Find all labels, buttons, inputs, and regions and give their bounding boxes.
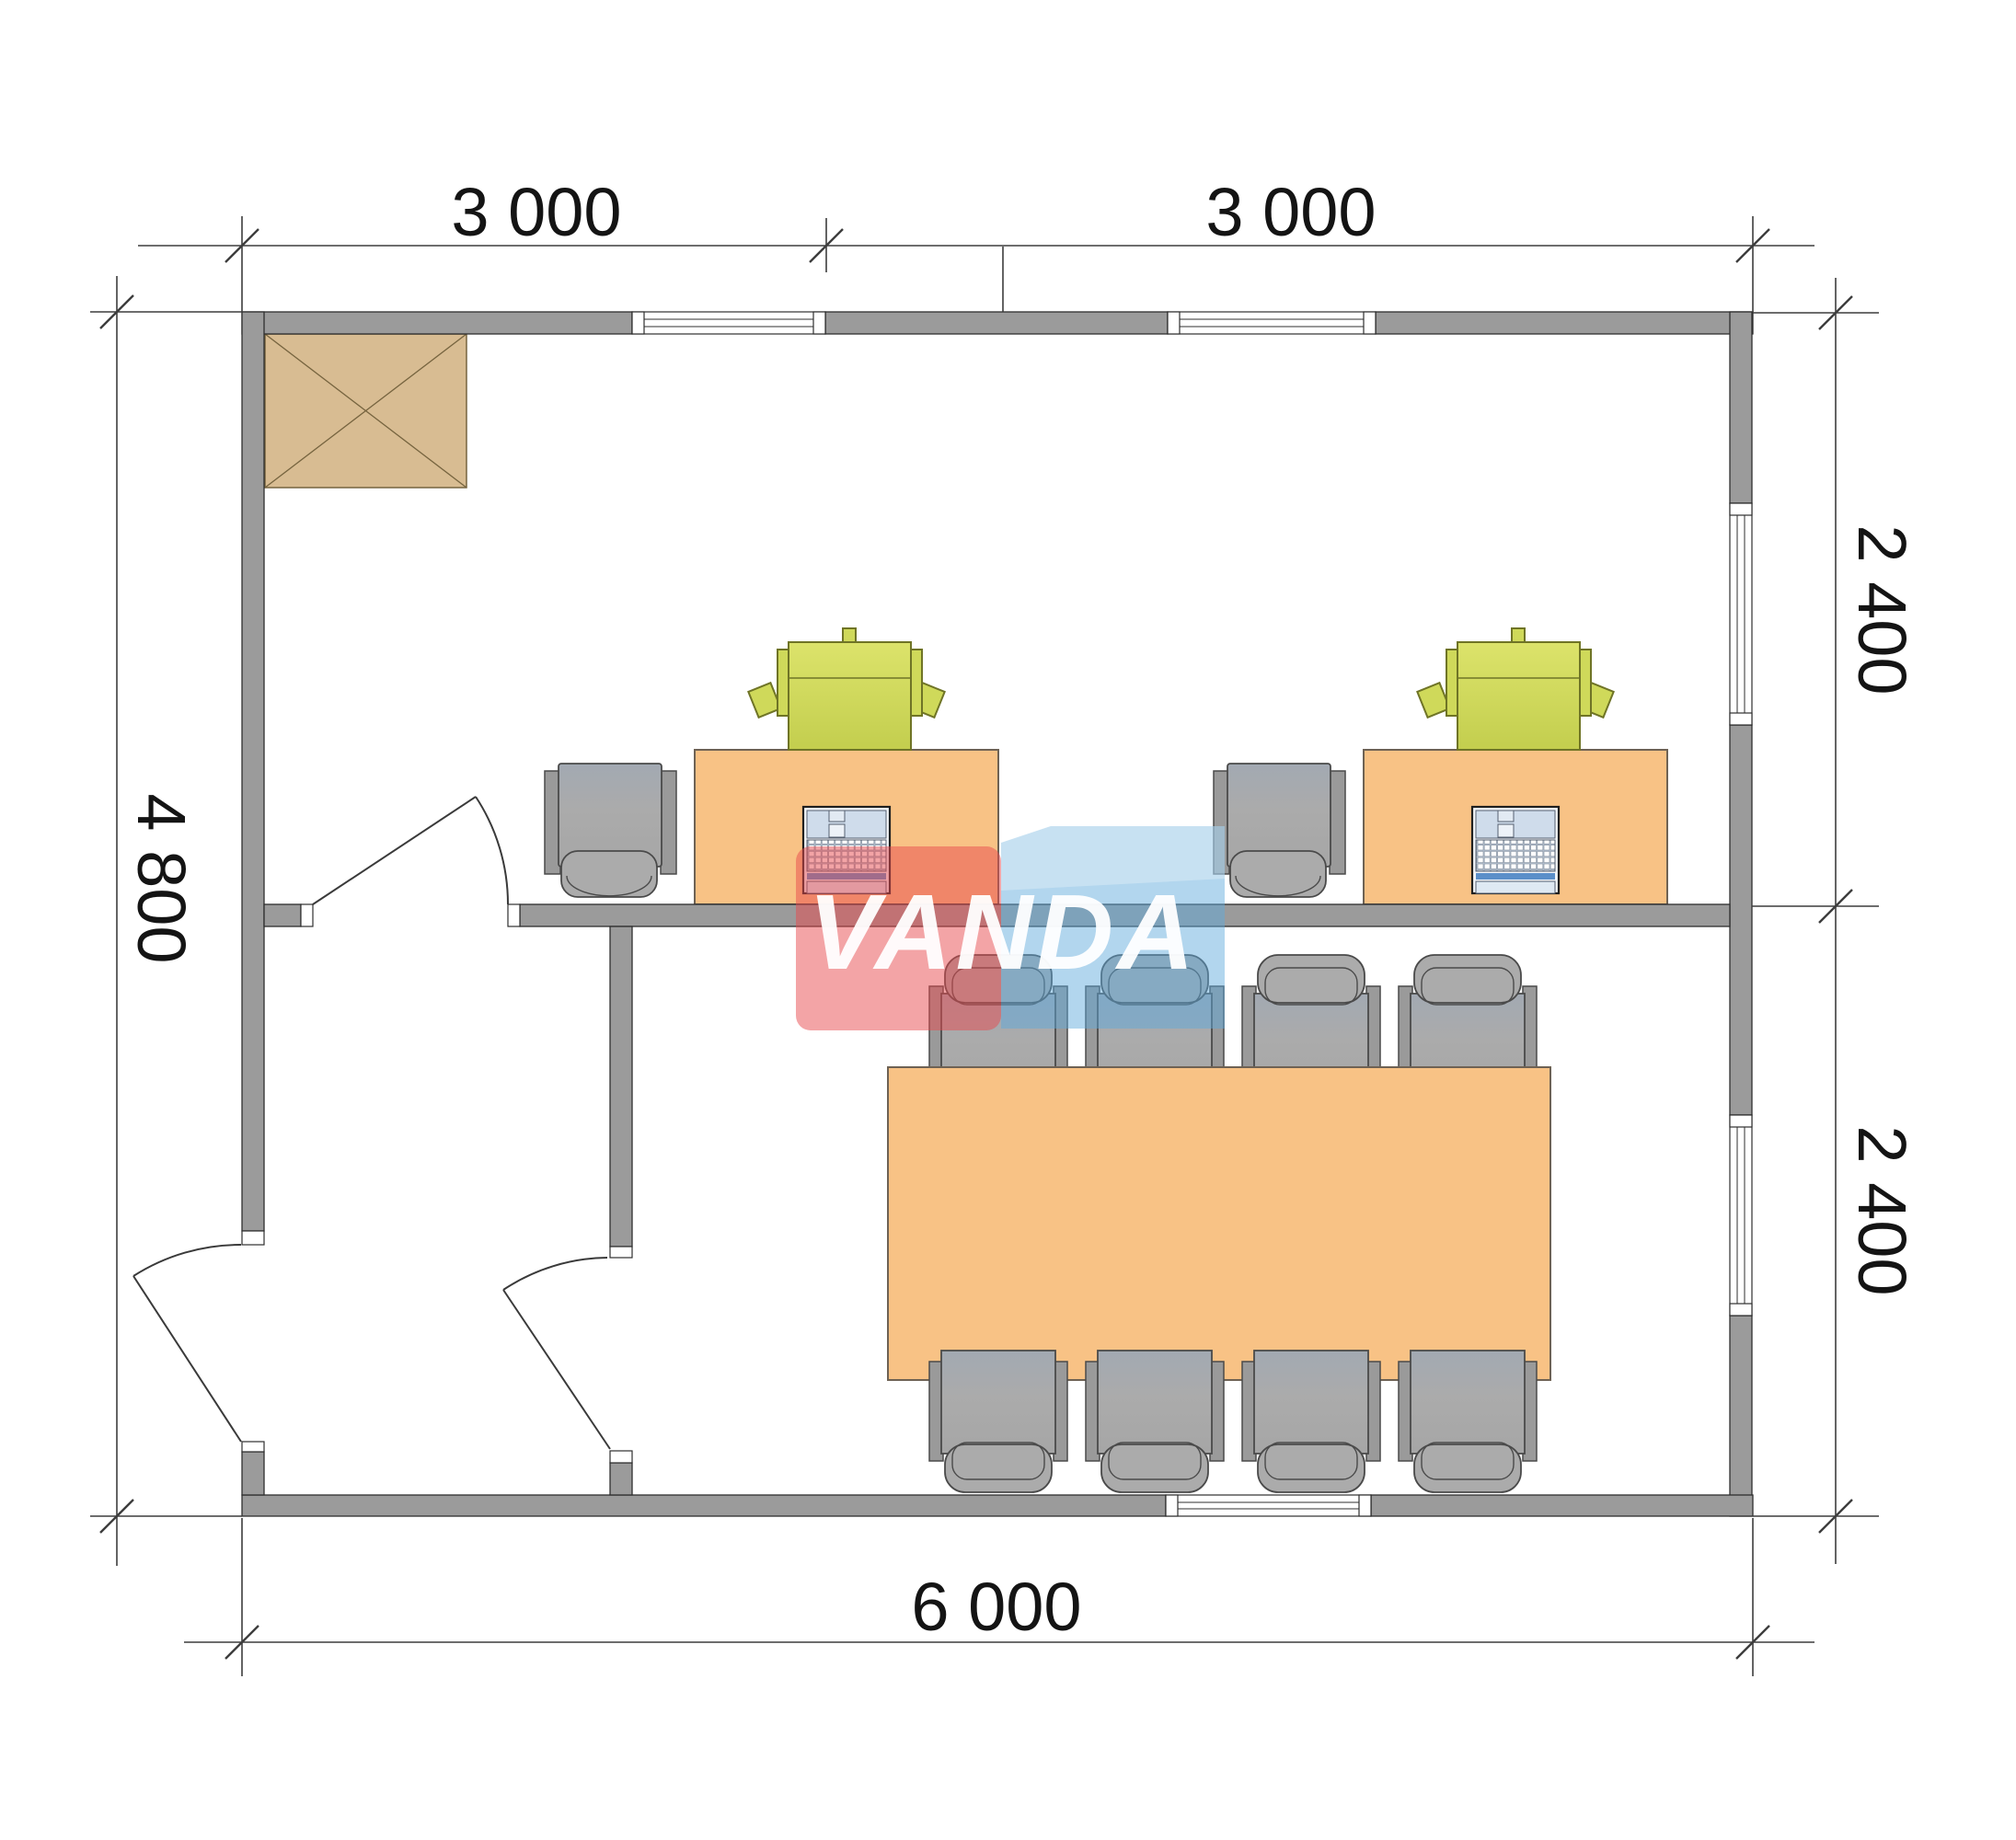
laptop-camera-block (829, 824, 845, 837)
wall-right-segment (1730, 725, 1752, 1115)
wall-right-segment (1730, 312, 1752, 503)
dim-label-left: 4 800 (123, 793, 200, 963)
meeting-chair (929, 1351, 1067, 1492)
watermark-text: VANDA (808, 872, 1198, 992)
wall-interior-horizontal-stub (264, 904, 301, 926)
meeting-table (888, 1067, 1550, 1380)
dim-label-bottom: 6 000 (911, 1569, 1081, 1645)
wall-partition-vertical-stub (610, 1463, 632, 1495)
window-right-lower (1730, 1115, 1752, 1316)
printer (748, 628, 944, 750)
corner-hatch-unit (265, 334, 467, 488)
doors (133, 797, 632, 1463)
window-right-upper (1730, 503, 1752, 725)
meeting-chair (1399, 1351, 1537, 1492)
meeting-chair (1242, 1351, 1380, 1492)
wall-right-segment (1730, 1316, 1752, 1516)
dim-label-right-upper: 2 400 (1844, 524, 1920, 695)
office-chair (1214, 764, 1345, 897)
door-partition (503, 1247, 632, 1463)
wall-partition-vertical (610, 926, 632, 1247)
window-top-left (632, 312, 825, 334)
wall-top-segment (1376, 312, 1753, 334)
wall-bottom-segment (242, 1495, 1166, 1516)
dim-extensions-right (1752, 313, 1879, 1516)
meeting-chair (1086, 1351, 1224, 1492)
laptop (1472, 807, 1559, 893)
dim-label-right-lower: 2 400 (1844, 1125, 1920, 1295)
wall-left-segment (242, 1452, 264, 1495)
wall-top-segment (242, 312, 632, 334)
laptop-screen (807, 811, 886, 838)
laptop-hinge (829, 811, 845, 822)
printer-body (789, 642, 911, 750)
window-bottom (1166, 1495, 1371, 1516)
watermark: VANDA (796, 826, 1225, 1030)
printer-tray-left (748, 683, 780, 718)
wall-top-segment (825, 312, 1168, 334)
dim-label-top-left: 3 000 (451, 174, 621, 250)
door-office (301, 797, 520, 926)
printer-knob (843, 628, 856, 643)
wall-left-segment (242, 312, 264, 1231)
chair-armrest-right (661, 771, 676, 874)
workstation-right (1214, 628, 1667, 904)
printer (1417, 628, 1613, 750)
window-top-right (1168, 312, 1376, 334)
office-chair (545, 764, 676, 897)
floor-plan-page: VANDA 3 000 3 000 4 800 2 400 2 400 6 00… (0, 0, 2016, 1840)
wall-bottom-segment (1371, 1495, 1753, 1516)
dim-label-top-right: 3 000 (1205, 174, 1376, 250)
chair-seat (561, 851, 657, 897)
door-entry (133, 1231, 264, 1452)
floor-plan-canvas: VANDA 3 000 3 000 4 800 2 400 2 400 6 00… (0, 0, 2016, 1840)
